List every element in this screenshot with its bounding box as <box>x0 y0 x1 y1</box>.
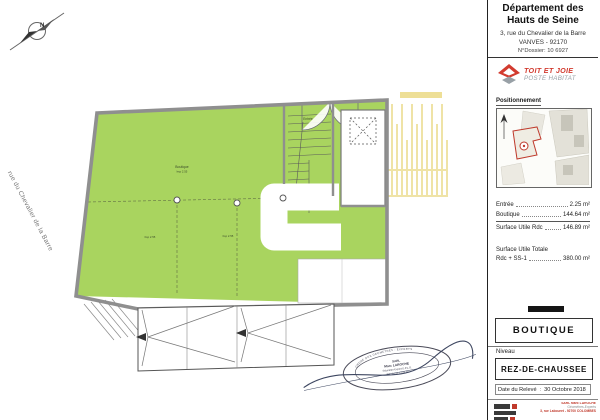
positionnement-label: Positionnement <box>496 98 541 106</box>
area-label: Boutique <box>496 212 520 218</box>
area-table: Entrée 2.25 m² Boutique 144.64 m² Surfac… <box>496 202 590 265</box>
section-mark <box>528 306 564 312</box>
north-compass-icon: N <box>10 13 64 50</box>
area-label: Surface Utile Rdc <box>496 225 543 231</box>
area-value: 2.25 m² <box>570 202 590 208</box>
logo-name-line2: POSTE HABITAT <box>524 75 576 83</box>
compass-n-label: N <box>40 23 44 29</box>
firm-line3: 3, rue Labouret - 92700 COLOMBES <box>530 410 596 414</box>
room-note-left: hsp 2.55 <box>145 235 156 239</box>
usage-box: BOUTIQUE <box>495 318 593 343</box>
level-label: Niveau <box>496 349 515 355</box>
area-value: 144.64 m² <box>563 212 590 218</box>
area-row-total: Rdc + SS-1 380.00 m² <box>496 256 590 262</box>
dossier-number: N°Dossier: 10 6927 <box>488 48 598 54</box>
room-label-entree: Entrée <box>303 117 313 121</box>
room-note-right: hsp 2.55 <box>223 234 234 238</box>
dotted-leader <box>516 206 568 207</box>
location-map-drawing <box>497 109 589 185</box>
client-logo: TOIT ET JOIE POSTE HABITAT <box>498 64 594 86</box>
header-divider <box>488 57 598 58</box>
area-label: Rdc + SS-1 <box>496 256 527 262</box>
back-room <box>298 259 386 303</box>
survey-date-value: 30 Octobre 2018 <box>544 387 586 393</box>
area-value: 146.89 m² <box>563 225 590 231</box>
project-city: VANVES - 92170 <box>488 39 598 46</box>
floor-plan-drawing: N <box>0 0 487 420</box>
map-north-arrow-icon <box>501 114 508 139</box>
area-label: Entrée <box>496 202 514 208</box>
level-value-box: REZ-DE-CHAUSSEE <box>495 358 593 380</box>
annex-shutters <box>136 304 334 371</box>
date-separator: : <box>540 387 542 393</box>
surface-totale-title: Surface Utile Totale <box>496 247 590 253</box>
title-block-panel: Département des Hauts de Seine 3, rue du… <box>487 0 598 420</box>
area-row-surface-utile-rdc: Surface Utile Rdc 146.89 m² <box>496 221 590 231</box>
project-title-line1: Département des <box>488 3 598 15</box>
survey-date-label: Date du Relevé <box>498 387 537 393</box>
project-header: Département des Hauts de Seine 3, rue du… <box>488 3 598 54</box>
toit-et-joie-logo-icon <box>498 64 520 86</box>
area-row-boutique: Boutique 144.64 m² <box>496 212 590 218</box>
surveyor-firm-contact: SARL Marc LAROCHE Géomètres-Experts 3, r… <box>530 402 596 414</box>
surveyor-firm-logo-icon <box>494 403 520 420</box>
floor-plan-sheet: N <box>0 0 600 420</box>
shaft-room <box>341 110 385 206</box>
dotted-leader <box>529 260 561 261</box>
project-address: 3, rue du Chevalier de la Barre <box>488 30 598 37</box>
logo-name-line1: TOIT ET JOIE <box>524 67 576 75</box>
area-value: 380.00 m² <box>563 256 590 262</box>
area-row-entree: Entrée 2.25 m² <box>496 202 590 208</box>
dotted-leader <box>545 229 561 230</box>
dotted-leader <box>522 216 561 217</box>
location-map <box>496 108 592 188</box>
project-title-line2: Hauts de Seine <box>488 15 598 27</box>
room-label-boutique-hsp: hsp 2.55 <box>177 170 188 174</box>
survey-date-row: Date du Relevé : 30 Octobre 2018 <box>495 384 591 395</box>
adjacent-structure-hatch <box>388 92 448 196</box>
room-label-boutique: Boutique <box>175 165 188 169</box>
level-divider <box>488 346 598 347</box>
surveyor-footer: SARL Marc LAROCHE Géomètres-Experts 3, r… <box>488 399 598 420</box>
